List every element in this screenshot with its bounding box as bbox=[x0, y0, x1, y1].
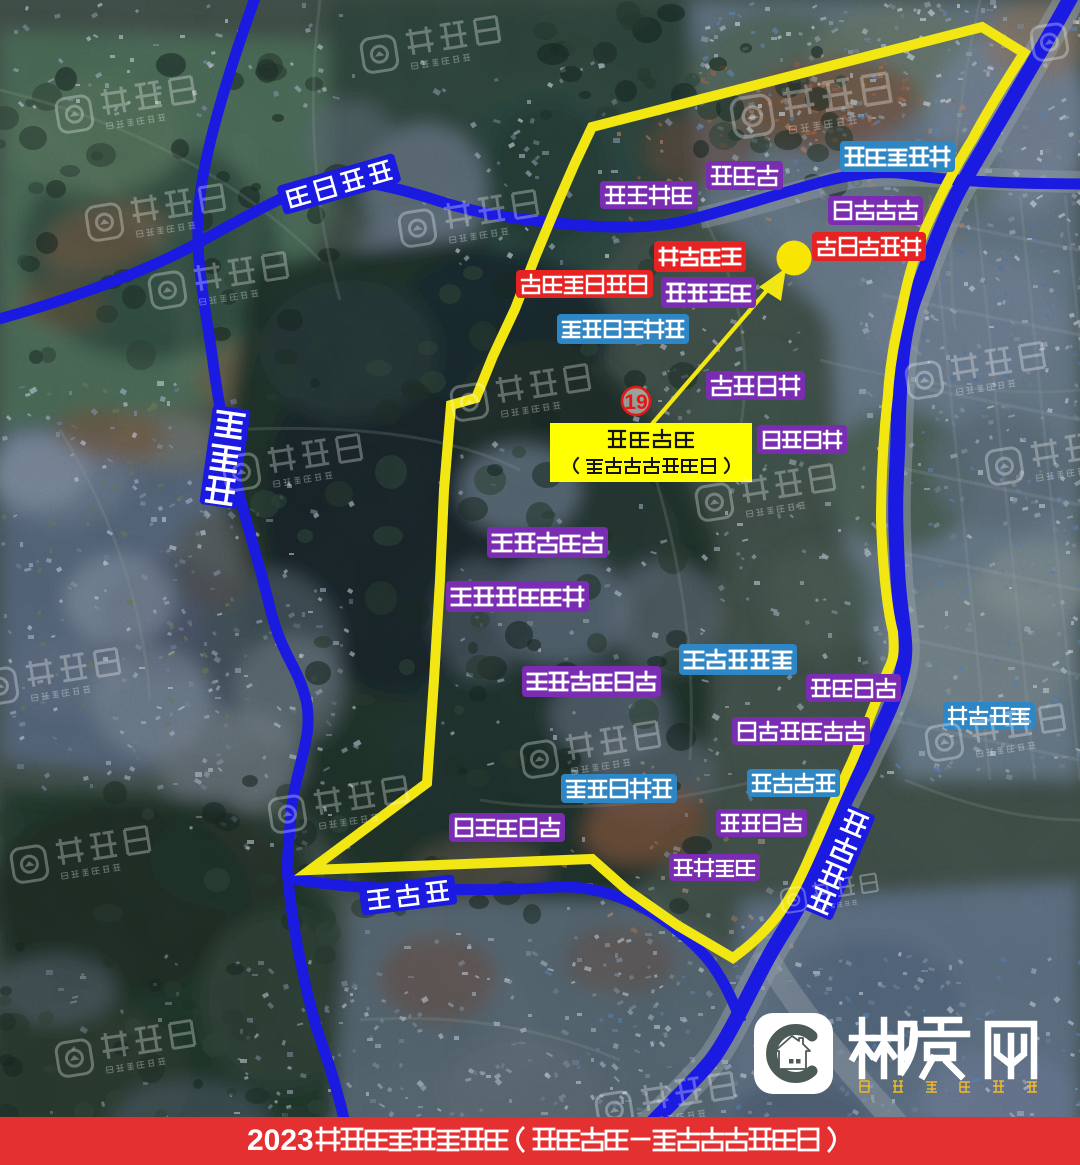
svg-text:2023: 2023 bbox=[247, 1124, 314, 1157]
svg-text:19: 19 bbox=[624, 391, 647, 414]
